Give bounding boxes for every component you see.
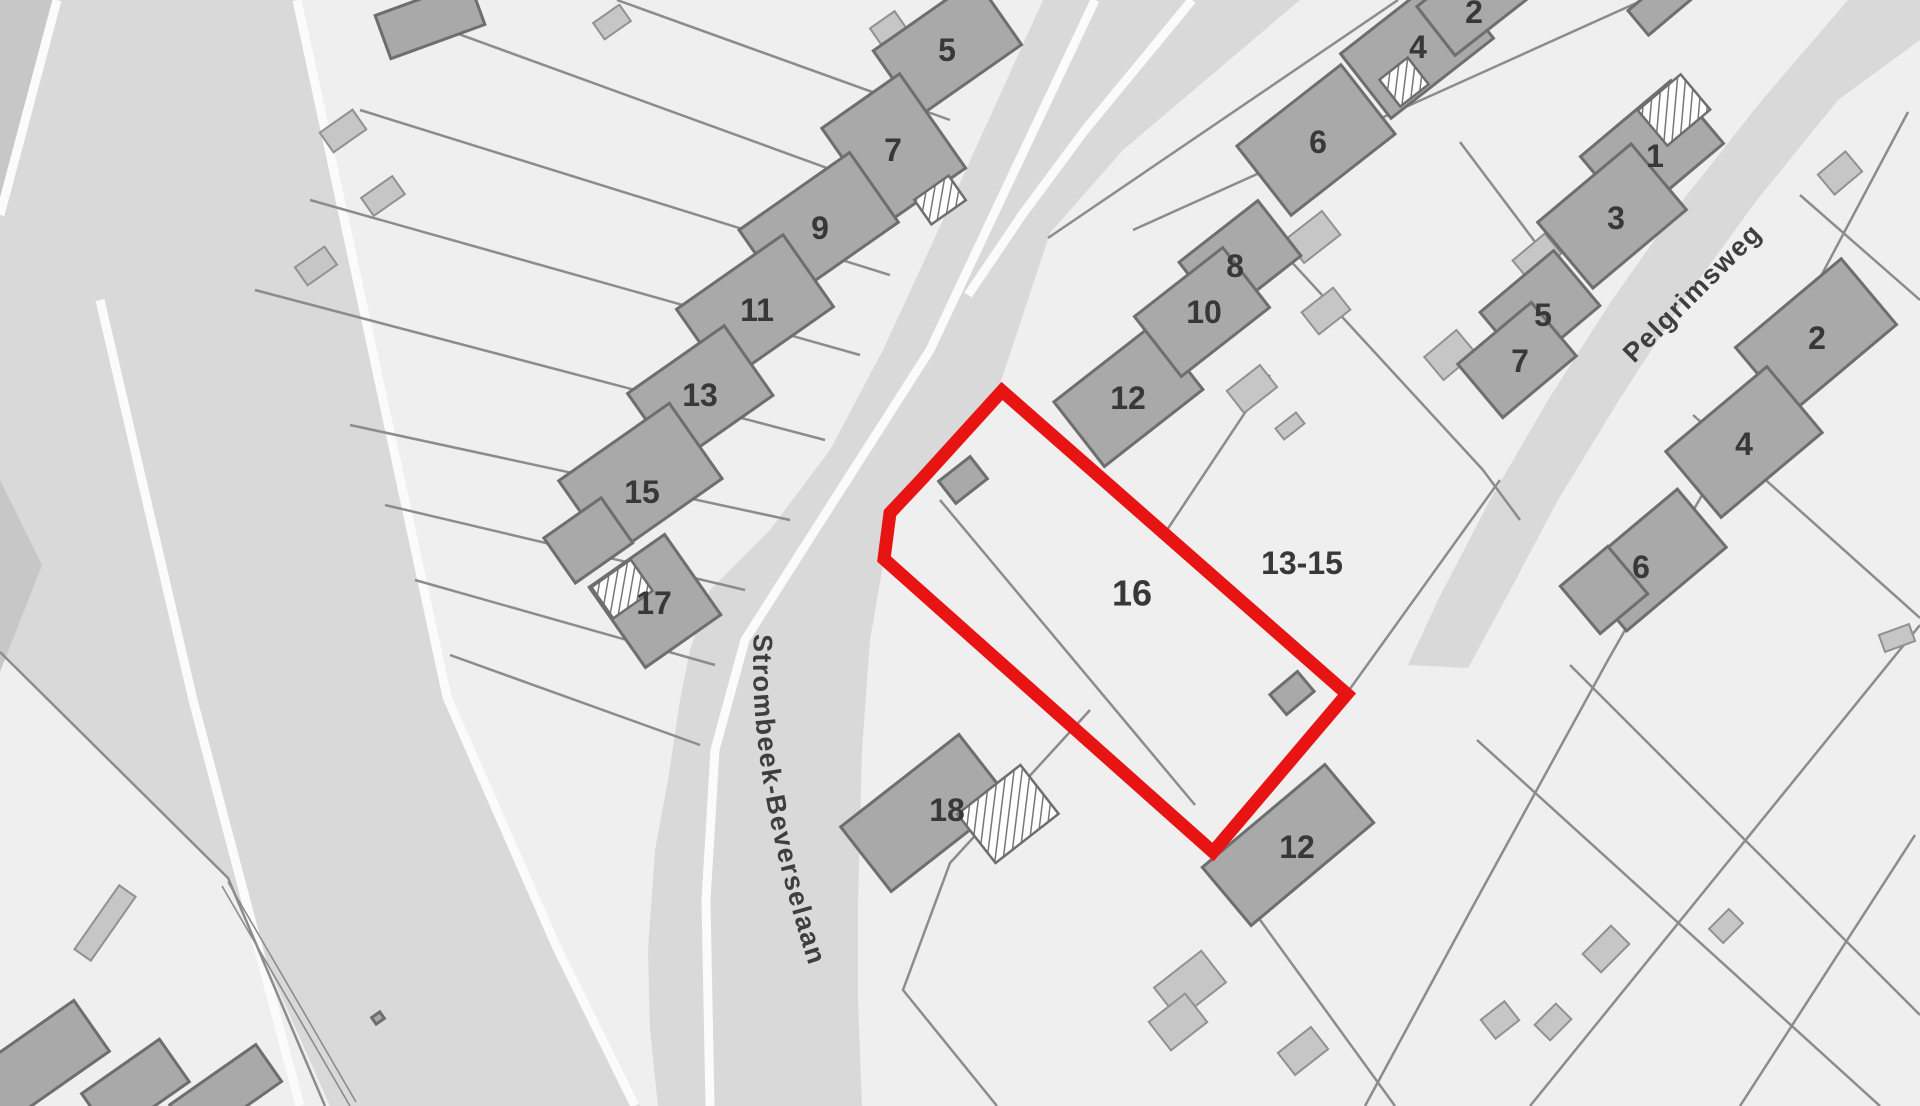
house-number-4-upper: 4 [1409, 29, 1427, 65]
house-number-18: 18 [929, 792, 965, 828]
house-number-7-east: 7 [1511, 343, 1529, 379]
highlighted-parcel-number: 16 [1112, 573, 1152, 614]
house-number-13: 13 [682, 377, 718, 413]
cadastral-map: 5791113151718128106421613-15121357246 St… [0, 0, 1920, 1106]
house-number-6-east: 6 [1632, 549, 1650, 585]
parcel-ref-13-15: 13-15 [1261, 545, 1343, 581]
house-number-6-upper: 6 [1309, 124, 1327, 160]
house-number-8: 8 [1226, 248, 1244, 284]
house-number-7-west: 7 [884, 132, 902, 168]
house-number-1: 1 [1646, 138, 1664, 174]
house-number-5-east: 5 [1534, 297, 1552, 333]
house-number-15: 15 [624, 474, 660, 510]
house-number-5-west: 5 [938, 32, 956, 68]
house-number-2-upper: 2 [1465, 0, 1483, 30]
house-number-3: 3 [1607, 200, 1625, 236]
house-number-11: 11 [740, 292, 774, 328]
house-number-4-east: 4 [1735, 426, 1753, 462]
house-number-12-lower: 12 [1279, 829, 1315, 865]
map-canvas: 5791113151718128106421613-15121357246 St… [0, 0, 1920, 1106]
house-number-9: 9 [811, 210, 829, 246]
house-number-12-upper: 12 [1110, 380, 1146, 416]
house-number-2-east: 2 [1808, 320, 1826, 356]
house-number-10: 10 [1186, 294, 1222, 330]
house-number-17: 17 [636, 585, 672, 621]
